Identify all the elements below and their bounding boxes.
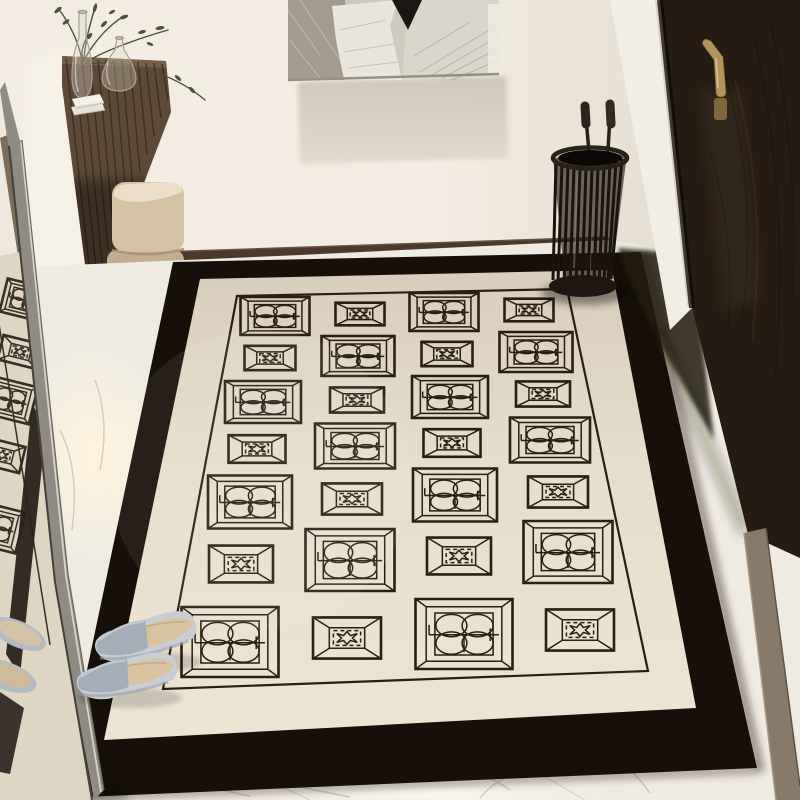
artwork bbox=[288, 0, 499, 80]
entryway-scene bbox=[0, 0, 800, 800]
artwork-shadow bbox=[298, 76, 508, 164]
